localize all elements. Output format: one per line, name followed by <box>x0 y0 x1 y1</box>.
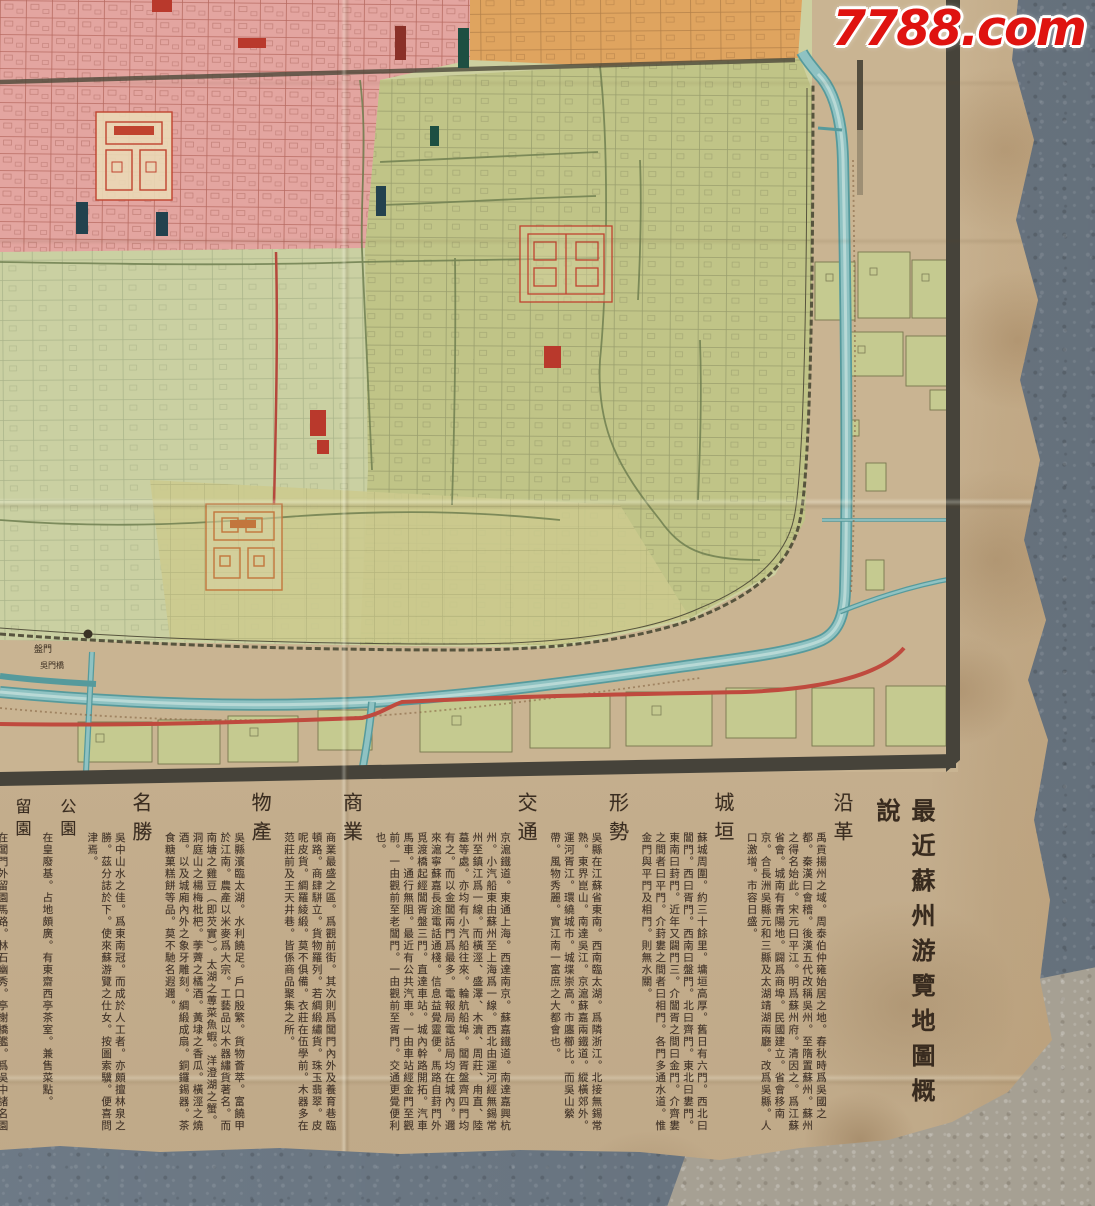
panmen-gate-label: 盤門 <box>34 643 52 654</box>
section-topography: 形勢 吳縣在江蘇省東南。西南臨太湖。爲隣浙江。北接無錫常熟。東界崑山。南達吳江。… <box>547 786 631 1138</box>
entry-title: 公園 <box>53 786 77 1138</box>
section-history: 沿革 禹貢揚州之域。周泰伯仲雍始居之地。春秋時爲吳國之都。秦漢曰會稽。後漢五代改… <box>744 786 856 1138</box>
section-body: 吳縣在江蘇省東南。西南臨太湖。爲隣浙江。北接無錫常熟。東界崑山。南達吳江。京滬蘇… <box>547 786 602 1138</box>
map-paper-sheet: 盤門 吳門橋 最近蘇州游覽地圖概說 沿革 禹貢揚州之域。周泰伯仲雍始居之地。春秋… <box>0 0 1095 1206</box>
section-commerce: 商業 商業最盛之區。爲觀前街。其次則爲閶門內外及養育巷臨頓路。商肆駢立。貨物羅列… <box>281 786 365 1138</box>
section-scenic-spots: 名勝 吳中山水之佳。爲東南冠。而成於人工者。亦頗擅林泉之勝。茲分誌於下。使來蘇游… <box>84 786 155 1138</box>
section-body: 吳中山水之佳。爲東南冠。而成於人工者。亦頗擅林泉之勝。茲分誌於下。使來蘇游覽之仕… <box>84 786 126 1138</box>
section-title: 名勝 <box>126 786 155 1138</box>
section-title: 城垣 <box>708 786 737 1138</box>
section-title: 沿革 <box>827 786 856 1138</box>
entry-body: 在閶門外留園馬路。林石幽秀。亭榭橋艦。爲吳中諸名園之冠。 <box>0 786 8 1138</box>
compound-south <box>206 504 282 590</box>
entry-title: 留園 <box>8 786 32 1138</box>
temple-compound-northwest <box>96 112 172 200</box>
section-body: 蘇城周圍。約三十餘里。墉垣高厚。舊日有六門。西北曰閶門。西曰胥門。西南曰盤門。北… <box>639 786 708 1138</box>
entry-public-garden: 公園 在皇廢基。占地頗廣。有東齋西亭茶室。兼售菜點。 <box>39 786 77 1138</box>
map-title: 最近蘇州游覽地圖概說 <box>868 786 938 1138</box>
section-title: 物產 <box>245 786 274 1138</box>
section-transport: 交通 京滬鐵道。東通上海。西達南京。蘇嘉鐵道。南達嘉興杭州。小汽船東由蘇州至上海… <box>373 786 541 1138</box>
panmen-gate-symbol <box>84 630 93 639</box>
wumen-bridge-label: 吳門橋 <box>40 660 64 670</box>
section-body: 商業最盛之區。爲觀前街。其次則爲閶門內外及養育巷臨頓路。商肆駢立。貨物羅列。若綢… <box>281 786 336 1138</box>
district-orange <box>470 0 802 66</box>
section-title: 形勢 <box>603 786 632 1138</box>
section-body: 吳縣濱臨太湖。水利饒足。戶口殷繁。貨物薈萃。富饒甲於江南。農產以米麥爲大宗。工藝… <box>162 786 245 1138</box>
section-body: 京滬鐵道。東通上海。西達南京。蘇嘉鐵道。南達嘉興杭州。小汽船東由蘇州至上海爲一線… <box>373 786 512 1138</box>
section-city-wall: 城垣 蘇城周圍。約三十餘里。墉垣高厚。舊日有六門。西北曰閶門。西曰胥門。西南曰盤… <box>639 786 737 1138</box>
section-products: 物產 吳縣濱臨太湖。水利饒足。戶口殷繁。貨物薈萃。富饒甲於江南。農產以米麥爲大宗… <box>162 786 274 1138</box>
section-title: 商業 <box>337 786 366 1138</box>
temple-compound-center <box>520 226 612 302</box>
entry-liu-garden: 留園 在閶門外留園馬路。林石幽秀。亭榭橋艦。爲吳中諸名園之冠。 <box>0 786 32 1138</box>
section-body: 禹貢揚州之域。周泰伯仲雍始居之地。春秋時爲吳國之都。秦漢曰會稽。後漢五代改稱吳州… <box>744 786 827 1138</box>
map-image: 盤門 吳門橋 <box>0 0 1095 790</box>
map-legend-text-panel: 最近蘇州游覽地圖概說 沿革 禹貢揚州之域。周泰伯仲雍始居之地。春秋時爲吳國之都。… <box>0 786 938 1138</box>
watermark: 7788.com <box>832 0 1085 57</box>
entry-body: 在皇廢基。占地頗廣。有東齋西亭茶室。兼售菜點。 <box>39 786 53 1138</box>
map-border-right <box>946 0 960 772</box>
photo-of-antique-suzhou-map: 盤門 吳門橋 最近蘇州游覽地圖概說 沿革 禹貢揚州之域。周泰伯仲雍始居之地。春秋… <box>0 0 1095 1206</box>
section-title: 交通 <box>511 786 540 1138</box>
